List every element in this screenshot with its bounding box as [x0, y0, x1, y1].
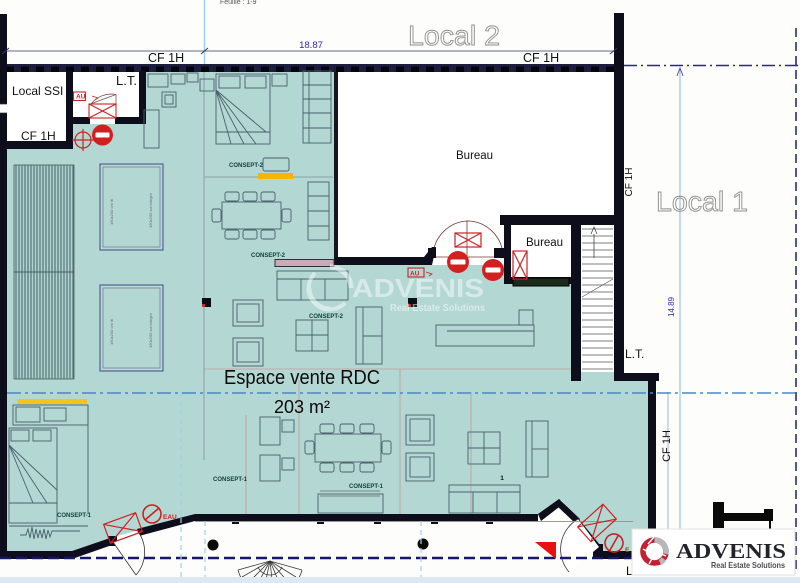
svg-text:L.T.: L.T. [625, 347, 644, 361]
svg-text:Bureau: Bureau [526, 237, 563, 249]
svg-text:CONSEPT-2: CONSEPT-2 [309, 314, 344, 320]
svg-text:Real Estate Solutions: Real Estate Solutions [711, 561, 785, 570]
svg-text:Local 2: Local 2 [408, 20, 500, 51]
svg-text:ADVENIS: ADVENIS [676, 539, 786, 563]
svg-text:160x200 sol integre: 160x200 sol integre [148, 312, 153, 348]
svg-text:Feuille : 1-9: Feuille : 1-9 [220, 0, 257, 6]
svg-text:CF 1H: CF 1H [21, 129, 56, 143]
svg-text:E: E [625, 547, 630, 554]
svg-text:CONSEPT-2: CONSEPT-2 [251, 253, 286, 259]
svg-text:ADVENIS: ADVENIS [352, 273, 484, 303]
svg-text:CONSEPT-2: CONSEPT-2 [229, 163, 264, 169]
svg-text:1: 1 [500, 475, 504, 482]
svg-text:Local 1: Local 1 [656, 186, 748, 217]
svg-text:14.89: 14.89 [667, 296, 676, 317]
svg-text:160x200 cm lit: 160x200 cm lit [109, 198, 114, 225]
svg-text:18.87: 18.87 [299, 40, 323, 51]
svg-text:160x200 sol integre: 160x200 sol integre [148, 192, 153, 228]
svg-text:160x200 cm lit: 160x200 cm lit [109, 318, 114, 345]
svg-text:CF 1H: CF 1H [624, 168, 635, 197]
svg-text:CONSEPT-1: CONSEPT-1 [57, 513, 92, 519]
svg-text:Local SSI: Local SSI [12, 84, 63, 98]
svg-text:L.T.: L.T. [116, 73, 137, 88]
svg-text:EAU: EAU [163, 514, 177, 521]
svg-text:CF 1H: CF 1H [148, 51, 184, 65]
svg-text:Real Estate Solutions: Real Estate Solutions [390, 303, 485, 314]
svg-text:CF 1H: CF 1H [523, 51, 559, 65]
svg-text:CF 1H: CF 1H [661, 430, 673, 462]
svg-text:AU: AU [76, 94, 86, 101]
svg-text:Espace vente RDC: Espace vente RDC [224, 367, 380, 389]
svg-text:CONSEPT-1: CONSEPT-1 [213, 477, 248, 483]
svg-text:Bureau: Bureau [456, 150, 493, 162]
svg-text:CONSEPT-1: CONSEPT-1 [349, 484, 384, 490]
svg-text:203 m²: 203 m² [274, 397, 330, 417]
